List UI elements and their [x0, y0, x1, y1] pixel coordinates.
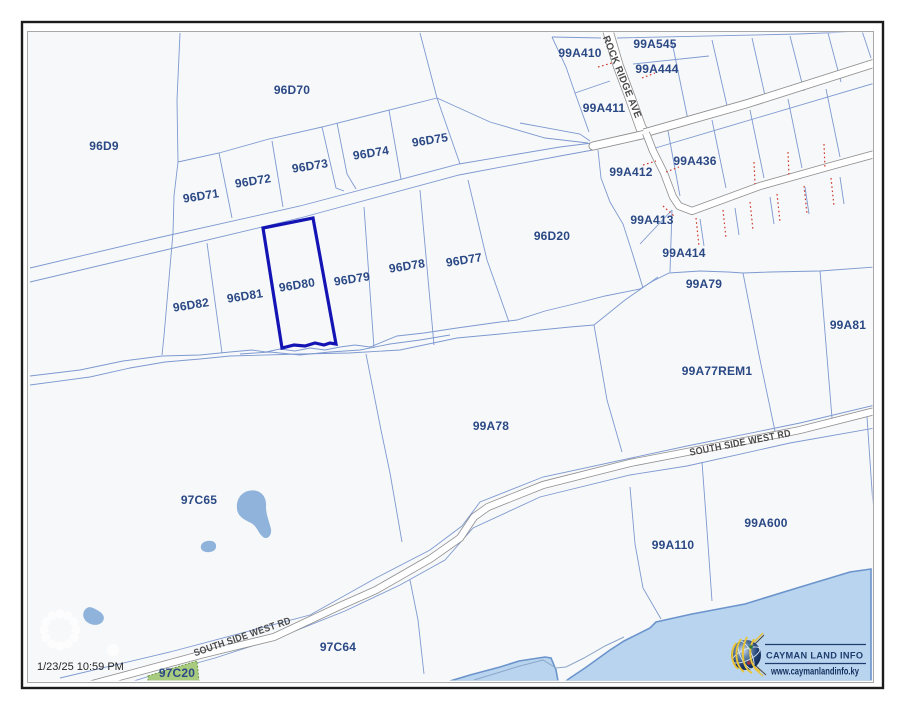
svg-text:99A410: 99A410	[558, 46, 601, 60]
svg-text:99A444: 99A444	[635, 62, 678, 76]
svg-text:CAYMAN LAND INFO: CAYMAN LAND INFO	[766, 651, 863, 661]
svg-text:www.caymanlandinfo.ky: www.caymanlandinfo.ky	[770, 667, 859, 678]
svg-text:99A77REM1: 99A77REM1	[682, 364, 753, 378]
svg-text:1/23/25 10:59 PM: 1/23/25 10:59 PM	[37, 661, 124, 673]
svg-text:96D20: 96D20	[534, 229, 570, 243]
svg-text:99A545: 99A545	[633, 37, 676, 51]
svg-text:99A413: 99A413	[630, 213, 673, 227]
svg-text:99A79: 99A79	[686, 277, 722, 291]
svg-text:96D9: 96D9	[89, 139, 119, 153]
svg-text:99A110: 99A110	[652, 538, 695, 552]
svg-text:99A78: 99A78	[473, 419, 509, 433]
svg-text:97C65: 97C65	[181, 493, 217, 507]
svg-text:99A414: 99A414	[662, 246, 705, 260]
svg-text:99A412: 99A412	[609, 165, 652, 179]
svg-text:99A600: 99A600	[744, 516, 787, 530]
svg-text:96D70: 96D70	[274, 83, 310, 97]
svg-text:97C20: 97C20	[159, 666, 195, 680]
svg-text:99A411: 99A411	[583, 101, 626, 115]
svg-text:99A81: 99A81	[830, 318, 866, 332]
svg-text:97C64: 97C64	[320, 640, 356, 654]
svg-text:99A436: 99A436	[673, 154, 716, 168]
